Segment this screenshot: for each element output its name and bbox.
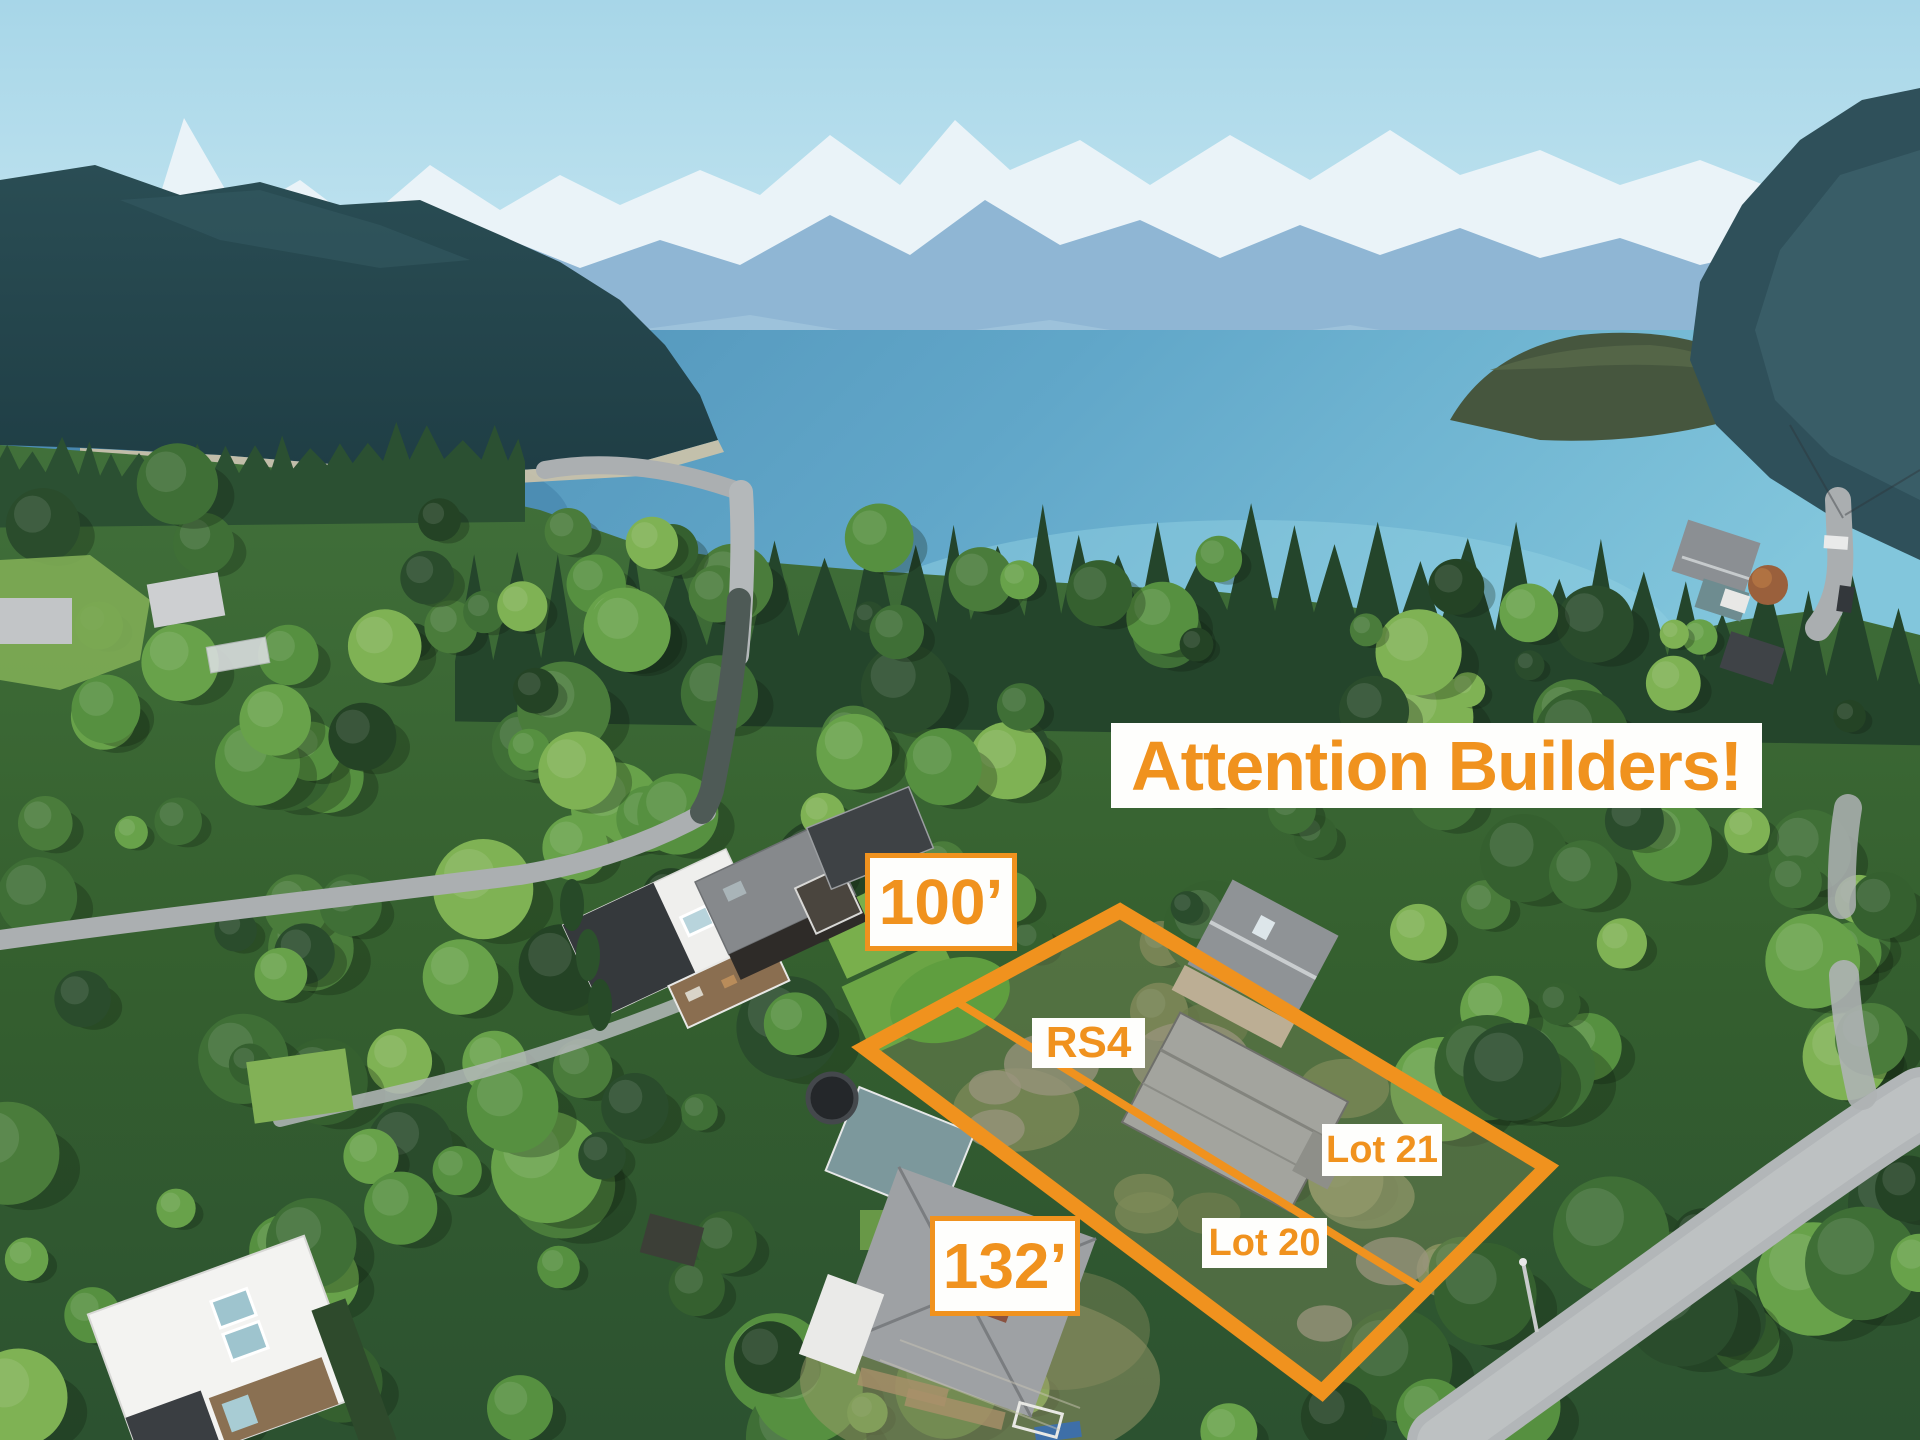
- trampoline: [808, 1074, 856, 1122]
- headline-banner: Attention Builders!: [1111, 723, 1762, 808]
- parked-van: [1824, 535, 1849, 550]
- lot-21-label: Lot 21: [1322, 1124, 1442, 1176]
- lot-20-label: Lot 20: [1202, 1218, 1327, 1268]
- zoning-label: RS4: [1032, 1018, 1145, 1068]
- lot-length-dimension-label: 132’: [930, 1216, 1080, 1316]
- aerial-listing-photo: Attention Builders! 100’ 132’ RS4 Lot 21…: [0, 0, 1920, 1440]
- lot-width-dimension-label: 100’: [865, 853, 1017, 951]
